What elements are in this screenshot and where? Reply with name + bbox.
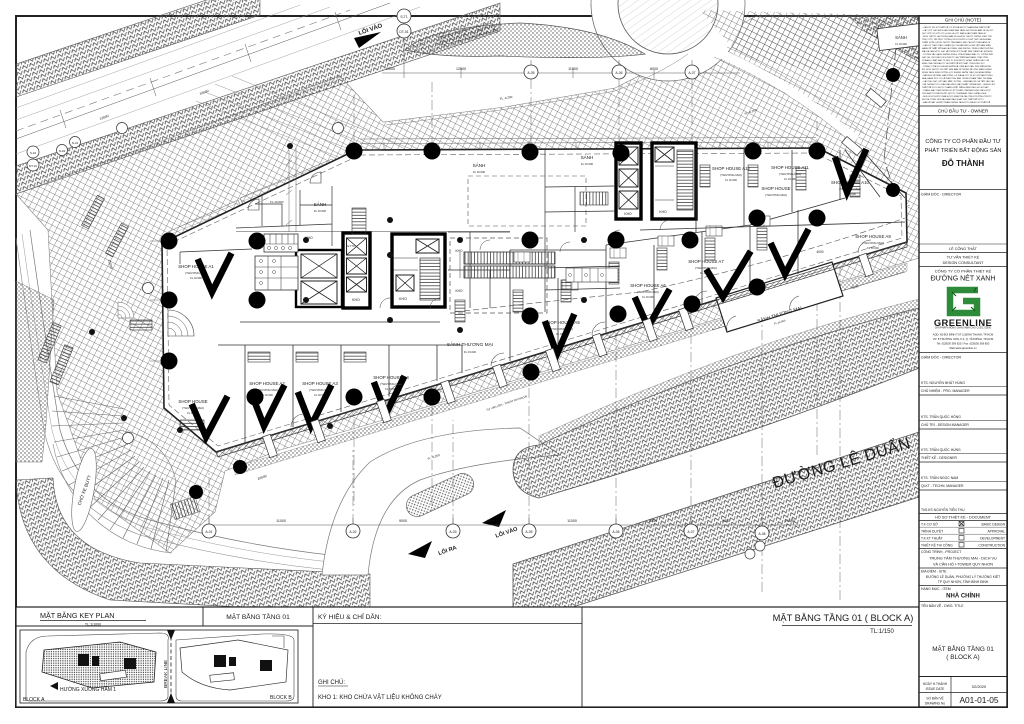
svg-text:KÝ HIỆU & CHỈ DẪN:: KÝ HIỆU & CHỈ DẪN: xyxy=(318,612,382,621)
svg-text:( BLOCK A): ( BLOCK A) xyxy=(946,654,979,661)
svg-text:(THƯƠNG MẠI): (THƯƠNG MẠI) xyxy=(765,193,787,197)
svg-text:N-02: N-02 xyxy=(59,149,66,153)
svg-text:SẢNH THƯƠNG MẠI: SẢNH THƯƠNG MẠI xyxy=(447,341,493,348)
svg-text:THIỆN. ĐƠN VỊ KÍCH THƯỚC TÍNH: THIỆN. ĐƠN VỊ KÍCH THƯỚC TÍNH BẰNG: MM. … xyxy=(922,41,990,44)
svg-text:TRÌNH DUYỆT: TRÌNH DUYỆT xyxy=(921,529,943,534)
svg-text:(THƯƠNG MẠI): (THƯƠNG MẠI) xyxy=(779,172,801,176)
svg-text:8000: 8000 xyxy=(650,67,658,71)
svg-text:11000: 11000 xyxy=(567,519,577,523)
svg-text:(THƯƠNG MẠI): (THƯƠNG MẠI) xyxy=(695,266,717,270)
svg-text:SẢNH: SẢNH xyxy=(314,201,327,207)
svg-text:8000: 8000 xyxy=(649,519,657,523)
svg-text:T.K KT THUẬT: T.K KT THUẬT xyxy=(921,537,943,541)
svg-text:DT-01: DT-01 xyxy=(29,164,38,168)
svg-text:20000: 20000 xyxy=(257,474,267,481)
svg-text:S-T1: S-T1 xyxy=(400,15,407,19)
svg-text:SHOP HOUSE: SHOP HOUSE xyxy=(178,399,207,404)
svg-text:A-02: A-02 xyxy=(349,530,356,534)
svg-text:KHO: KHO xyxy=(659,210,667,214)
svg-text:MẶT BẰNG TẦNG 01 ( BLOCK A): MẶT BẰNG TẦNG 01 ( BLOCK A) xyxy=(773,613,914,623)
svg-text:- CÁC CỐT CAO ĐỘ HOÀN THIỆN SÀ: - CÁC CỐT CAO ĐỘ HOÀN THIỆN SÀN TẦNG GHI… xyxy=(922,29,994,32)
svg-text:SHOP HOUSE A2: SHOP HOUSE A2 xyxy=(249,381,285,386)
svg-text:FL ±0.000: FL ±0.000 xyxy=(642,295,654,299)
svg-text:KTS. TRẦN QUỐC HÙNG: KTS. TRẦN QUỐC HÙNG xyxy=(921,447,961,452)
svg-text:CHỦ TRÌ - DESIGN MANAGER: CHỦ TRÌ - DESIGN MANAGER xyxy=(921,422,969,427)
svg-text:TƯ VẤN THIẾT KẾ: TƯ VẤN THIẾT KẾ xyxy=(947,255,980,260)
svg-text:11000: 11000 xyxy=(276,519,286,523)
svg-text:ThS.KS NGUYỄN TIẾN THỤ: ThS.KS NGUYỄN TIẾN THỤ xyxy=(921,507,965,512)
svg-text:9200: 9200 xyxy=(722,519,730,523)
svg-text:HƯỚNG XUỐNG HẦM 1: HƯỚNG XUỐNG HẦM 1 xyxy=(60,686,116,693)
svg-text:KHO: KHO xyxy=(456,289,463,293)
svg-text:BỘ. KÍCH THƯỚC CHI TIẾT XEM BẢ: BỘ. KÍCH THƯỚC CHI TIẾT XEM BẢN VẼ THỐNG… xyxy=(922,68,992,71)
svg-text:ĐỊNH CỦA CHỦ ĐẦU TƯ VÀ THIẾT K: ĐỊNH CỦA CHỦ ĐẦU TƯ VÀ THIẾT KẾ NỘI THẤT… xyxy=(922,62,985,65)
svg-text:A-06: A-06 xyxy=(612,530,619,534)
svg-text:LỐI RA: LỐI RA xyxy=(437,544,457,557)
svg-text:FL ±0.000: FL ±0.000 xyxy=(784,177,796,181)
svg-text:- TƯỜNG XÂY GẠCH KHÔNG NUNG, V: - TƯỜNG XÂY GẠCH KHÔNG NUNG, VỮA XI MĂNG… xyxy=(922,53,994,56)
svg-text:A-03: A-03 xyxy=(449,530,456,534)
svg-text:TRỤC CỘT, TIM TRỤC TƯỜNG, KÍCH: TRỤC CỘT, TIM TRỤC TƯỜNG, KÍCH THƯỚC LỖ … xyxy=(922,38,992,41)
svg-text:A-08: A-08 xyxy=(758,532,765,536)
svg-text:FL ±0.000: FL ±0.000 xyxy=(464,350,476,354)
svg-text:12000: 12000 xyxy=(456,67,466,71)
svg-text:8000: 8000 xyxy=(487,519,495,523)
svg-text:NHÀ CHÍNH: NHÀ CHÍNH xyxy=(946,592,980,600)
svg-text:BASIC DESIGN: BASIC DESIGN xyxy=(982,523,1006,527)
svg-text:4000: 4000 xyxy=(816,250,823,254)
svg-text:DT-01: DT-01 xyxy=(399,30,408,34)
svg-text:02/2020: 02/2020 xyxy=(972,684,987,689)
svg-text:- CỬA ĐI, CỬA SỔ: KHUNG NHÔM H: - CỬA ĐI, CỬA SỔ: KHUNG NHÔM HỆ, KÍNH AN… xyxy=(922,65,992,68)
svg-text:PHÁT TRIỂN BẤT ĐỘNG SẢN: PHÁT TRIỂN BẤT ĐỘNG SẢN xyxy=(925,147,1002,154)
svg-text:HẠNG MỤC - ITEM: HẠNG MỤC - ITEM xyxy=(921,587,951,591)
svg-text:SHOP HOUSE A11: SHOP HOUSE A11 xyxy=(771,165,809,170)
svg-text:(THƯƠNG MẠI): (THƯƠNG MẠI) xyxy=(862,241,884,245)
svg-text:A-05: A-05 xyxy=(525,530,532,534)
svg-text:(THƯƠNG MẠI): (THƯƠNG MẠI) xyxy=(720,173,742,177)
svg-text:12000: 12000 xyxy=(99,114,109,121)
svg-text:TL:1/1000: TL:1/1000 xyxy=(85,623,101,627)
svg-text:S-10: S-10 xyxy=(30,151,37,155)
svg-text:10000: 10000 xyxy=(199,89,209,96)
svg-text:SHOP HOUSE A3: SHOP HOUSE A3 xyxy=(302,381,338,386)
svg-text:BLOCK A: BLOCK A xyxy=(23,697,45,703)
svg-text:QUY ƯỚC SO VỚI CỐT ±0.000 LÀ C: QUY ƯỚC SO VỚI CỐT ±0.000 LÀ CỐT SÀN HOÀ… xyxy=(922,32,987,35)
svg-text:GIÁM ĐỐC - DIRECTOR: GIÁM ĐỐC - DIRECTOR xyxy=(921,355,961,360)
svg-text:LÊ CÔNG THẤT: LÊ CÔNG THẤT xyxy=(949,246,978,251)
svg-text:CÔNG TY CỔ PHẦN ĐẦU TƯ: CÔNG TY CỔ PHẦN ĐẦU TƯ xyxy=(925,138,1001,145)
svg-text:11000: 11000 xyxy=(568,67,578,71)
svg-text:KHO: KHO xyxy=(399,297,407,301)
svg-text:ISSUE DATE: ISSUE DATE xyxy=(926,687,945,691)
svg-text:GIẢI PHÁP KHÔNG GIAN XANH CHO: GIẢI PHÁP KHÔNG GIAN XANH CHO CUỘC SỐNG xyxy=(935,327,992,330)
svg-text:CÔNG TY CỔ PHẦN THIẾT KẾ: CÔNG TY CỔ PHẦN THIẾT KẾ xyxy=(935,269,992,274)
svg-text:KTS. TRẦN NGỌC NAM: KTS. TRẦN NGỌC NAM xyxy=(921,476,958,480)
svg-text:LỐI VÀO: LỐI VÀO xyxy=(494,525,519,539)
svg-text:10000: 10000 xyxy=(385,67,395,71)
svg-text:DESIGN CONSULTANT: DESIGN CONSULTANT xyxy=(943,261,984,265)
svg-text:KHO 1: KHO CHỨA VẬT LIỆU KHÔNG: KHO 1: KHO CHỨA VẬT LIỆU KHÔNG CHÁY xyxy=(318,693,442,701)
svg-text:KHO: KHO xyxy=(456,249,463,253)
svg-text:KHO: KHO xyxy=(624,212,632,216)
svg-text:DRAWING No: DRAWING No xyxy=(925,702,945,706)
svg-text:FL -0.200: FL -0.200 xyxy=(499,95,513,101)
svg-text:NHÀ, ĐÁNH DỐC 1% VỀ PHỄU THU S: NHÀ, ĐÁNH DỐC 1% VỀ PHỄU THU SÀN. CHỐNG … xyxy=(922,77,992,80)
svg-text:CONSTRUCTION: CONSTRUCTION xyxy=(978,544,1005,548)
svg-text:E.T70: E.T70 xyxy=(348,244,355,248)
svg-text:FL ±0.000: FL ±0.000 xyxy=(725,178,737,182)
svg-text:DEVELOPMENT: DEVELOPMENT xyxy=(980,537,1005,541)
svg-text:ĐƯỜNG LÊ DUẨN, PHƯỜNG LÝ THƯỜN: ĐƯỜNG LÊ DUẨN, PHƯỜNG LÝ THƯỜNG KIỆT xyxy=(926,574,1000,579)
svg-text:ĐƯỜNG NÉT XANH: ĐƯỜNG NÉT XANH xyxy=(931,274,996,283)
svg-text:ADD: 65 BÙI ĐÌNH TUÝ (2,BÌNH T: ADD: 65 BÙI ĐÌNH TUÝ (2,BÌNH THẠNH, TP.H… xyxy=(933,333,994,337)
svg-text:- HỆ THỐNG PCCC: ĐẦU BÁO KHÓI,: - HỆ THỐNG PCCC: ĐẦU BÁO KHÓI, BÁO NHIỆT… xyxy=(922,83,995,86)
svg-text:THIẾT KẾ - DESIGNER: THIẾT KẾ - DESIGNER xyxy=(921,455,957,460)
svg-text:XI MĂNG 2 MẶT MÁC 75 DÀY 15. S: XI MĂNG 2 MẶT MÁC 75 DÀY 15. SƠN NƯỚC HO… xyxy=(922,59,989,62)
svg-text:Tel: (028)36 369 825 / Fax: (0: Tel: (028)36 369 825 / Fax: (028)36 369 … xyxy=(937,342,990,346)
svg-text:(THƯƠNG MẠI): (THƯƠNG MẠI) xyxy=(637,290,659,294)
svg-text:GIÁM ĐỐC - DIRECTOR: GIÁM ĐỐC - DIRECTOR xyxy=(921,192,961,197)
svg-text:KHO: KHO xyxy=(352,298,360,302)
svg-text:ĐÔ THÀNH: ĐÔ THÀNH xyxy=(942,159,984,168)
svg-text:BLOCK B: BLOCK B xyxy=(270,695,292,701)
svg-text:FL ±0.000: FL ±0.000 xyxy=(473,170,485,174)
svg-text:NGÀY H.THÀNH: NGÀY H.THÀNH xyxy=(923,682,948,686)
svg-text:ĐỊA ĐIỂM - SITE: ĐỊA ĐIỂM - SITE xyxy=(921,569,947,574)
svg-text:KTS. NGUYỄN NHẬT HÙNG: KTS. NGUYỄN NHẬT HÙNG xyxy=(921,380,965,385)
svg-text:BREAK LINE: BREAK LINE xyxy=(163,660,169,688)
svg-text:MẶT BẰNG KEY PLAN: MẶT BẰNG KEY PLAN xyxy=(40,611,114,620)
svg-text:DÀY 100, 200 THEO KÍCH THƯỚC G: DÀY 100, 200 THEO KÍCH THƯỚC GHI TRÊN MẶ… xyxy=(922,56,988,59)
svg-text:SHOP HOUSE A7: SHOP HOUSE A7 xyxy=(688,259,724,264)
svg-text:TL:1/150: TL:1/150 xyxy=(870,629,894,635)
svg-text:- SÀN KHU VỆ SINH, BAN CÔNG, L: - SÀN KHU VỆ SINH, BAN CÔNG, LÔ GIA HẠ C… xyxy=(922,74,993,77)
svg-text:DÙNG VÁCH KÍNH CƯỜNG LỰC KHUNG: DÙNG VÁCH KÍNH CƯỜNG LỰC KHUNG NHÔM THEO… xyxy=(922,71,991,74)
svg-text:CHỦ ĐẦU TƯ - OWNER: CHỦ ĐẦU TƯ - OWNER xyxy=(938,108,989,114)
svg-text:- CĂN CỨ HỒ SƠ THIẾT KẾ CƠ SỞ: - CĂN CỨ HỒ SƠ THIẾT KẾ CƠ SỞ ĐÃ ĐƯỢC TH… xyxy=(922,26,991,29)
svg-text:SHOP HOUSE A1: SHOP HOUSE A1 xyxy=(178,264,214,269)
svg-text:KHI THI CÔNG. MỌI SAI KHÁC BÁO: KHI THI CÔNG. MỌI SAI KHÁC BÁO NGAY CHO … xyxy=(922,98,984,101)
svg-text:SHOP HOUSE A9: SHOP HOUSE A9 xyxy=(855,234,891,239)
svg-text:FL ±0.000: FL ±0.000 xyxy=(895,42,907,46)
svg-text:CHỦ ĐẦU TƯ PHÊ DUYỆT. HỐ PIT,: CHỦ ĐẦU TƯ PHÊ DUYỆT. HỐ PIT, OVERHEAD T… xyxy=(922,92,987,95)
svg-text:TÊN BẢN VẼ - DWG. TITLE: TÊN BẢN VẼ - DWG. TITLE xyxy=(921,603,964,608)
svg-text:CHỦ NHIỆM - PRO. MANAGER: CHỦ NHIỆM - PRO. MANAGER xyxy=(921,388,970,393)
svg-text:TP QUY NHƠN, TỈNH BÌNH ĐỊNH: TP QUY NHƠN, TỈNH BÌNH ĐỊNH xyxy=(938,579,989,584)
svg-text:APPROVAL: APPROVAL xyxy=(987,530,1005,534)
svg-text:T.K CƠ SỞ: T.K CƠ SỞ xyxy=(921,522,938,527)
svg-text:SẢNH: SẢNH xyxy=(473,162,486,168)
svg-text:MẠI VÀ CĂN HỘ Ở. CÁC HỆ THỐNG: MẠI VÀ CĂN HỘ Ở. CÁC HỆ THỐNG KỸ THUẬT X… xyxy=(922,50,993,53)
svg-text:- CẤU TẠO CÁC LỚP SÀN, NỀN, TƯ: - CẤU TẠO CÁC LỚP SÀN, NỀN, TƯỜNG... XEM… xyxy=(922,80,995,83)
svg-text:HÀNH VỀ THIẾT KẾ NHÀ CAO TẦNG,: HÀNH VỀ THIẾT KẾ NHÀ CAO TẦNG, VĂN PHÒNG… xyxy=(922,47,994,50)
svg-text:QLKT - TECHN. MANAGER: QLKT - TECHN. MANAGER xyxy=(921,484,964,488)
svg-text:N-01: N-01 xyxy=(72,141,79,145)
svg-text:Web:www.greenline.vn: Web:www.greenline.vn xyxy=(949,346,977,350)
svg-text:A-07: A-07 xyxy=(687,530,694,534)
svg-text:GHI CHÚ (NOTE): GHI CHÚ (NOTE) xyxy=(945,17,982,23)
svg-text:THIẾT KẾ PCCC ĐƯỢC THẨM DUYỆT: THIẾT KẾ PCCC ĐƯỢC THẨM DUYỆT RIÊNG KÈM … xyxy=(922,86,989,89)
svg-text:9000: 9000 xyxy=(399,519,407,523)
svg-text:SHOP HOUSE A12: SHOP HOUSE A12 xyxy=(712,166,751,171)
svg-text:HỒ SƠ THIẾT KẾ - DOCUMENT: HỒ SƠ THIẾT KẾ - DOCUMENT xyxy=(935,515,992,520)
svg-text:- KÍCH THƯỚC GHI TRONG BẢN VẼ: - KÍCH THƯỚC GHI TRONG BẢN VẼ LÀ KÍCH TH… xyxy=(922,35,992,38)
svg-text:- MỌI KÍCH THƯỚC PHẢI ĐƯỢC KIỂ: - MỌI KÍCH THƯỚC PHẢI ĐƯỢC KIỂM TRA TẠI … xyxy=(922,95,992,98)
svg-text:GHI CHÚ:: GHI CHÚ: xyxy=(318,679,345,686)
svg-text:FL ±0.000: FL ±0.000 xyxy=(314,209,326,213)
svg-text:SẢNH: SẢNH xyxy=(581,154,594,160)
svg-text:SHOP HOUSE: SHOP HOUSE xyxy=(761,186,790,191)
svg-text:- THANG MÁY: XEM THÔNG SỐ KỸ T: - THANG MÁY: XEM THÔNG SỐ KỸ THUẬT CỦA N… xyxy=(922,89,991,92)
svg-text:FL ±0.000: FL ±0.000 xyxy=(867,246,879,250)
svg-text:6500: 6500 xyxy=(851,284,859,290)
svg-text:A-01: A-01 xyxy=(205,530,212,534)
svg-text:FL ±0.000: FL ±0.000 xyxy=(190,276,202,280)
svg-text:A-07: A-07 xyxy=(688,71,695,75)
svg-text:A-05: A-05 xyxy=(527,71,534,75)
svg-text:CÔNG TRÌNH - PROJECT: CÔNG TRÌNH - PROJECT xyxy=(921,549,961,554)
svg-text:SỐ BẢN VẼ: SỐ BẢN VẼ xyxy=(926,696,943,701)
svg-text:FL ±0.000: FL ±0.000 xyxy=(581,162,593,166)
svg-text:FL ±0.000: FL ±0.000 xyxy=(270,200,284,204)
svg-text:A01-01-05: A01-01-05 xyxy=(959,695,998,705)
svg-text:TRUNG TÂM THƯƠNG MẠI - DỊCH VỤ: TRUNG TÂM THƯƠNG MẠI - DỊCH VỤ xyxy=(929,556,997,561)
svg-text:- BẢN VẼ NÀY LÀ MỘT PHẦN KHÔNG: - BẢN VẼ NÀY LÀ MỘT PHẦN KHÔNG TÁCH RỜI … xyxy=(922,101,991,104)
svg-text:KTS. TRẦN QUỐC HỒNG: KTS. TRẦN QUỐC HỒNG xyxy=(921,414,961,419)
svg-text:THIẾT KẾ THI CÔNG: THIẾT KẾ THI CÔNG xyxy=(921,543,953,548)
svg-text:VÀ CĂN HỘ I-TOWER QUY NHƠN: VÀ CĂN HỘ I-TOWER QUY NHƠN xyxy=(933,562,993,567)
svg-text:SHOP HOUSE A6: SHOP HOUSE A6 xyxy=(630,283,666,288)
svg-text:A-06: A-06 xyxy=(615,71,622,75)
svg-text:- CĂN CỨ THEO TIÊU CHUẨN QUY C: - CĂN CỨ THEO TIÊU CHUẨN QUY CHUẨN XÂY D… xyxy=(922,44,991,47)
svg-text:SẢNH: SẢNH xyxy=(895,35,907,40)
svg-text:21500: 21500 xyxy=(785,519,795,523)
